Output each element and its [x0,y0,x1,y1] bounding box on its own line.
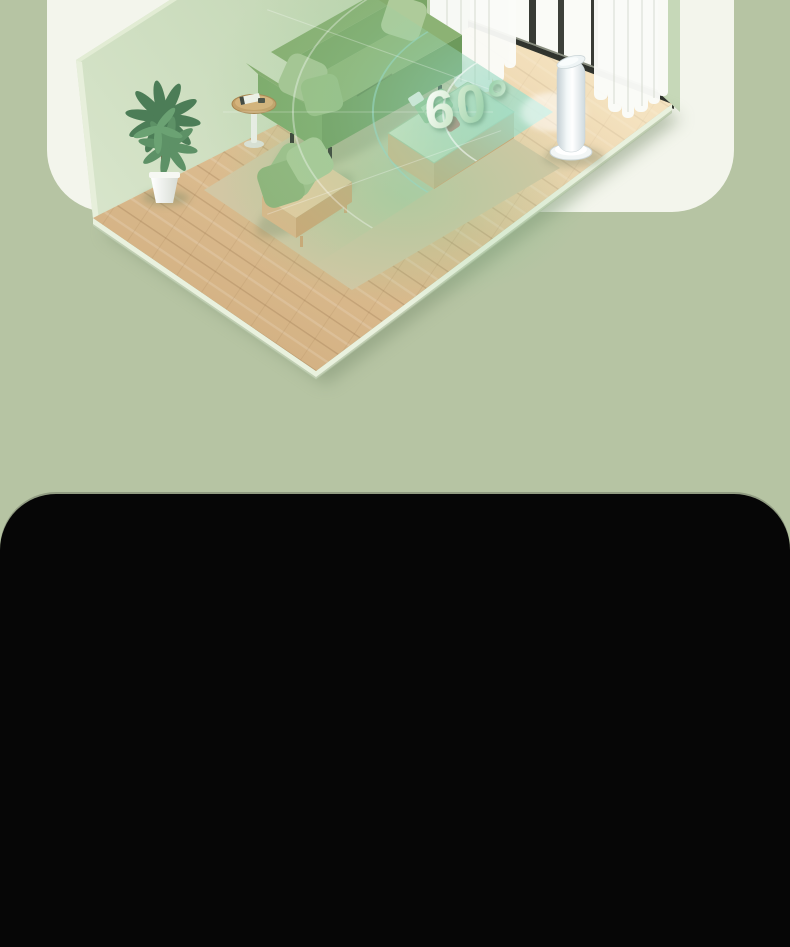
product-detail-page: 60° 生态水幕湿帘散热 空调级涡旋风轮 空气经过热交换系统后降温，出冰爽冷风，… [0,0,790,947]
fan-body [557,60,585,152]
isometric-room-graphic [0,0,790,505]
hero-illustration: 60° [0,0,790,505]
feature-panel: 生态水幕湿帘散热 空调级涡旋风轮 空气经过热交换系统后降温，出冰爽冷风，搭配涡旋… [0,494,790,947]
plant-pot-rim [149,172,180,178]
